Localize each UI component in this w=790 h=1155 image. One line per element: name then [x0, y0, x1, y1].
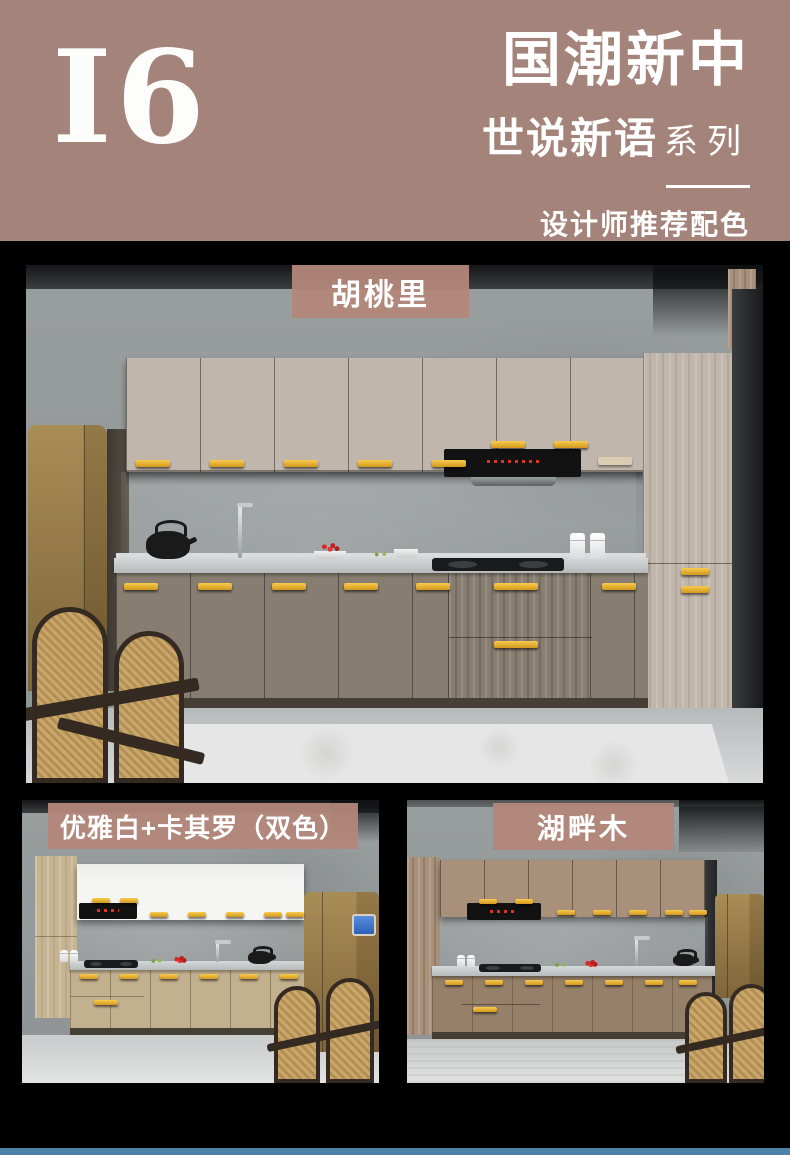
gold-handle: [94, 1000, 118, 1005]
range-hood: [467, 903, 541, 920]
toe-kick: [432, 1032, 712, 1039]
gold-handle: [358, 460, 392, 467]
gold-handle: [284, 460, 318, 467]
colorway-label-bottom-left: 优雅白+卡其罗（双色）: [48, 803, 358, 849]
drawer-unit: [448, 573, 591, 698]
gas-stove: [432, 558, 564, 571]
gold-handle: [92, 898, 110, 903]
gold-handle: [240, 974, 258, 979]
series-title: 世说新语 系列: [482, 105, 750, 166]
gas-stove: [479, 964, 541, 972]
hood-vent: [471, 477, 556, 486]
kitchen-photo-walnut: 胡桃里: [26, 265, 763, 783]
kitchen-photo-lakeside-wood: 湖畔木: [407, 800, 764, 1083]
collection-title: 国潮新中: [502, 30, 750, 92]
toe-kick: [70, 1028, 308, 1035]
gold-handle: [602, 583, 636, 590]
kettle: [673, 954, 695, 966]
gold-handle: [515, 899, 533, 904]
gold-handle: [605, 980, 623, 985]
header-banner: I6 国潮新中 世说新语 系列 设计师推荐配色: [0, 0, 790, 241]
footer-accent-bar: [0, 1148, 790, 1155]
chili-plate: [583, 960, 599, 968]
brand-logo: I6: [52, 28, 209, 169]
rattan-chair: [114, 631, 184, 783]
kitchen-photo-white-khaki: 优雅白+卡其罗（双色）: [22, 800, 379, 1083]
faucet: [635, 938, 638, 966]
product-detail-page: I6 国潮新中 世说新语 系列 设计师推荐配色: [0, 0, 790, 1155]
gold-handle: [286, 912, 304, 917]
header-title-block: 国潮新中 世说新语 系列 设计师推荐配色: [482, 30, 750, 243]
gold-handle: [479, 899, 497, 904]
lime-garnish: [370, 551, 392, 558]
gold-handle: [679, 980, 697, 985]
gold-handle: [681, 568, 709, 575]
series-suffix: 系列: [664, 114, 750, 163]
mortar-bowl: [394, 549, 418, 558]
gold-handle: [150, 912, 168, 917]
divider-line: [666, 185, 750, 188]
vegetables: [551, 962, 571, 968]
gold-handle: [344, 583, 378, 590]
wood-shelf-handle: [598, 457, 632, 465]
canister: [570, 533, 585, 559]
designer-tagline: 设计师推荐配色: [540, 203, 750, 243]
ceiling-corner-shadow: [679, 800, 764, 852]
gold-handle: [124, 583, 158, 590]
gold-handle: [494, 641, 538, 648]
gold-handle: [226, 912, 244, 917]
tall-pantry-cabinet: [643, 353, 732, 709]
gold-handle: [565, 980, 583, 985]
gold-handle: [593, 910, 611, 915]
vegetables: [148, 958, 166, 964]
canister: [467, 955, 475, 967]
gold-handle: [525, 980, 543, 985]
berry-bowl: [316, 542, 344, 554]
range-hood: [79, 903, 137, 919]
gold-handle: [473, 1007, 497, 1012]
fridge-screen: [352, 914, 376, 936]
canister: [590, 533, 605, 559]
gold-handle: [200, 974, 218, 979]
gold-handle: [485, 980, 503, 985]
wall-corner-shadow: [732, 289, 763, 709]
gas-stove: [84, 960, 138, 968]
gold-handle: [557, 910, 575, 915]
gold-handle: [272, 583, 306, 590]
gold-handle: [445, 980, 463, 985]
lower-cabinets-khaki: [70, 970, 308, 1028]
canister: [457, 955, 465, 967]
canister: [70, 950, 78, 962]
gold-handle: [210, 460, 244, 467]
colorway-label-main: 胡桃里: [292, 265, 469, 318]
series-name: 世说新语: [482, 105, 658, 166]
gold-handle: [665, 910, 683, 915]
gold-handle: [494, 583, 538, 590]
kettle: [146, 531, 190, 559]
gold-handle: [645, 980, 663, 985]
gold-handle: [280, 974, 298, 979]
backsplash: [440, 917, 708, 966]
fridge: [715, 894, 764, 998]
gold-handle: [264, 912, 282, 917]
gold-handle: [432, 460, 466, 467]
gold-handle: [689, 910, 707, 915]
kettle: [248, 951, 272, 964]
gold-handle: [629, 910, 647, 915]
countertop: [114, 558, 648, 573]
colorway-label-bottom-right: 湖畔木: [493, 803, 674, 850]
faucet: [216, 942, 219, 962]
gold-handle: [120, 974, 138, 979]
chili-plate: [172, 956, 188, 964]
gold-handle: [136, 460, 170, 467]
gold-handle: [416, 583, 450, 590]
gold-handle: [198, 583, 232, 590]
countertop: [432, 966, 717, 976]
gold-handle: [681, 586, 709, 593]
gold-handle: [554, 441, 588, 448]
area-rug: [154, 724, 729, 783]
gold-handle: [188, 912, 206, 917]
gold-handle: [160, 974, 178, 979]
faucet: [238, 505, 242, 558]
gold-handle: [80, 974, 98, 979]
gold-handle: [120, 898, 138, 903]
gold-handle: [491, 441, 525, 448]
canister: [60, 950, 68, 962]
